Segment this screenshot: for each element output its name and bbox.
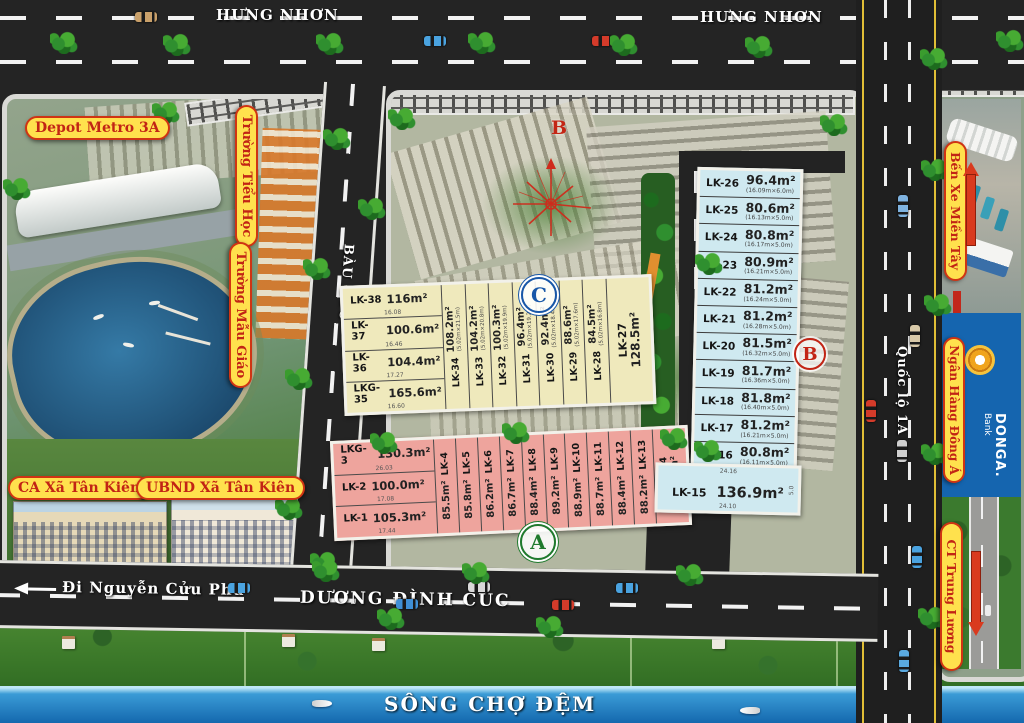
plot-area: 81.2m²	[743, 310, 793, 324]
plot-area: 80.8m²	[740, 446, 790, 460]
road-name-hung-nhon-left: HƯNG NHƠN	[216, 6, 339, 24]
plot-id: LK-20	[702, 340, 736, 353]
plot-lk27: LK-27 128.5m²	[606, 277, 654, 403]
plot-dims: (5.02m×17.6m)	[574, 302, 581, 346]
plot-area: 88.4m²	[616, 475, 628, 515]
car-icon	[898, 195, 908, 217]
car-icon	[899, 650, 909, 672]
plot-id: LK-17	[700, 422, 734, 435]
boat-icon	[312, 700, 332, 707]
plot-id: LK-12	[614, 441, 626, 471]
plot-id: LK-32	[497, 355, 509, 385]
label-ngan-hang-dong-a: Ngân Hàng Đông Á	[943, 337, 965, 483]
plot-id: LK-34	[450, 357, 462, 387]
plot-id: LK-37	[351, 320, 381, 343]
plot-row: LK-2380.9m²(16.21m×5.0m)	[698, 250, 799, 279]
label-ct-trung-luong: CT Trung Lương	[940, 522, 963, 671]
plot-id: LK-29	[568, 352, 580, 382]
plot-block-b: LK-2696.4m²(16.09m×6.0m)LK-2580.6m²(16.1…	[691, 167, 804, 473]
plot-id: LK-22	[703, 286, 737, 299]
plot-rows-pink: LKG-3130.3m²26.03LK-2100.0m²17.08LK-1105…	[333, 439, 437, 537]
bus-icon	[980, 196, 995, 220]
label-truong-tieu-hoc: Trường Tiểu Học	[235, 105, 258, 247]
plot-block-c: LK-38116m²16.08LK-37100.6m²16.46LK-36104…	[340, 274, 657, 416]
car-icon	[468, 582, 490, 592]
road-name-text: Quốc lộ 1A	[894, 346, 909, 435]
plot-id: LK-4	[439, 452, 451, 476]
car-icon	[866, 400, 876, 422]
plot-area: 100.0m²	[371, 477, 425, 493]
section-marker-b: B	[794, 338, 826, 370]
plot-id: LK-7	[505, 449, 517, 473]
plot-dims: (16.24m×5.0m)	[743, 297, 791, 304]
compass-north-letter: B	[551, 117, 567, 139]
plot-row: LK-1881.8m²(16.40m×5.0m)	[695, 386, 796, 415]
plot-id: LKG-35	[353, 382, 383, 405]
aerial-panel-left	[2, 94, 342, 582]
plot-area: 128.5m²	[628, 312, 643, 368]
plot-area: 89.2m²	[551, 475, 563, 515]
plot-row: LK-2100.0m²17.08	[334, 471, 435, 507]
plot-id: LK-18	[701, 395, 735, 408]
plot-row: LK-38116m²16.08	[343, 285, 442, 320]
plot-row: LK-1781.2m²(16.21m×5.0m)	[694, 414, 795, 443]
plot-row: LK-1981.7m²(16.36m×5.0m)	[695, 359, 796, 388]
plot-area: 104.4m²	[387, 353, 441, 369]
plot-dims: (16.13m×5.0m)	[745, 215, 793, 222]
road-name-hung-nhon-right: HƯNG NHƠN	[700, 8, 823, 26]
plot-id: LK-5	[461, 451, 473, 475]
car-icon	[616, 583, 638, 593]
donga-logo-icon	[965, 345, 995, 375]
plot-area: 85.8m²	[463, 479, 475, 519]
plot-id: LK-26	[706, 177, 740, 190]
house-icon	[62, 636, 75, 649]
label-text: Ngân Hàng Đông Á	[943, 337, 965, 483]
plot-row: LK-2480.8m²(16.17m×5.0m)	[699, 223, 800, 252]
road-edge-line	[934, 0, 936, 723]
car-icon	[396, 599, 418, 609]
plot-area: 86.7m²	[507, 477, 519, 517]
plot-id: LK-36	[352, 351, 382, 374]
plot-id: LK-15	[672, 485, 707, 499]
plot-row: LK-2696.4m²(16.09m×6.0m)	[700, 170, 801, 198]
plot-dim: 17.44	[378, 527, 395, 535]
plot-dim: 24.10	[719, 503, 736, 510]
plot-id: LK-23	[704, 259, 738, 272]
plot-area: 88.9m²	[573, 477, 585, 517]
label-text: Trường Mẫu Giáo	[229, 242, 252, 388]
house-icon	[372, 638, 385, 651]
label-text: Trường Tiểu Học	[235, 105, 258, 247]
plot-row: LK-36104.4m²17.27	[345, 348, 444, 383]
plot-dims: (5.02m×20.8m)	[480, 306, 487, 350]
plot-dims: (16.32m×5.0m)	[742, 351, 790, 358]
plot-row: LKG-35165.6m²16.60	[346, 379, 445, 413]
plot-area: 105.3m²	[373, 509, 427, 525]
plot-area: 88.7m²	[595, 476, 607, 516]
plot-row: LK-1105.3m²17.44	[336, 503, 437, 538]
compass-rose-icon	[507, 156, 595, 244]
donga-logo-text: DONGA. Bank	[982, 413, 1007, 478]
plot-id: LK-8	[527, 448, 539, 472]
plot-block-a: LKG-3130.3m²26.03LK-2100.0m²17.08LK-1105…	[330, 425, 692, 541]
plot-area: 165.6m²	[388, 384, 442, 400]
plot-dim: 24.16	[720, 468, 737, 475]
car-icon	[912, 546, 922, 568]
car-icon	[985, 605, 991, 616]
road-name-di-nguyen-cuu-phu: Đi Nguyễn Cửu Phú	[62, 578, 245, 599]
lane-dashes	[884, 0, 887, 723]
arrow-down-icon	[968, 552, 984, 636]
land-plot-map: DONGA. Bank HƯNG NHƠN HƯNG NHƠN BÀU GỐC	[0, 0, 1024, 723]
plot-id: LK-13	[636, 440, 648, 470]
plot-row: LK-2181.2m²(16.28m×5.0m)	[697, 305, 798, 334]
plot-area: 80.9m²	[744, 256, 794, 270]
plot-rows-yellow: LK-38116m²16.08LK-37100.6m²16.46LK-36104…	[343, 285, 446, 413]
plot-area: 80.6m²	[745, 201, 795, 215]
plot-dim: 17.27	[386, 371, 403, 379]
label-depot-metro: Depot Metro 3A	[25, 116, 170, 140]
plot-id: LK-10	[571, 443, 583, 473]
plot-dim: 16.46	[385, 340, 402, 348]
label-ca-xa-tan-kien: CA Xã Tân Kiên	[8, 476, 150, 500]
plot-id: LK-25	[705, 204, 739, 217]
plot-id: LK-38	[350, 294, 382, 306]
plot-id: LK-16	[700, 449, 734, 462]
label-text: CT Trung Lương	[940, 522, 963, 671]
plot-dim: 16.60	[388, 403, 405, 411]
plot-area: 85.5m²	[441, 480, 453, 520]
building-windows	[14, 522, 166, 566]
plot-id: LK-28	[592, 351, 604, 381]
house-icon	[282, 634, 295, 647]
plot-dims: (16.28m×5.0m)	[743, 324, 791, 331]
plot-id: LK-11	[593, 442, 605, 472]
car-icon	[592, 36, 614, 46]
plot-dims: (5.02m×18.4m)	[551, 303, 558, 347]
plot-row: LK-2081.5m²(16.32m×5.0m)	[696, 332, 797, 361]
plot-area: 81.5m²	[742, 337, 792, 351]
plot-id: LK-1	[343, 513, 368, 525]
plot-area: 88.2m²	[638, 474, 650, 514]
plot-id: LK-9	[549, 447, 561, 471]
plot-dims: (5.02m×19.9m)	[504, 305, 511, 349]
section-marker-c: C	[521, 277, 557, 313]
plot-strips-pink: 85.5m²LK-485.8m²LK-586.2m²LK-686.7m²LK-7…	[433, 430, 656, 534]
plot-id: LK-24	[705, 231, 739, 244]
plot-row: LK-37100.6m²16.46	[344, 316, 443, 351]
plot-dim: 17.08	[377, 496, 394, 504]
car-icon	[424, 36, 446, 46]
plot-area: 116m²	[386, 291, 428, 307]
plot-id: LK-6	[483, 450, 495, 474]
car-icon	[135, 12, 157, 22]
plot-id: LK-33	[474, 356, 486, 386]
plot-id: LK-31	[521, 353, 533, 383]
plot-id: LK-30	[544, 352, 556, 382]
plot-dim: 16.08	[384, 309, 401, 317]
car-icon	[910, 325, 920, 347]
plot-dims: (16.21m×5.0m)	[744, 269, 792, 276]
plot-area: 81.2m²	[744, 283, 794, 297]
plot-row: LK-2281.2m²(16.24m×5.0m)	[697, 278, 798, 307]
police-building	[13, 501, 167, 567]
plot-lk15: 24.16 LK-15 136.9m² 24.10 5.0	[654, 462, 801, 515]
road-name-quoc-lo-1a: Quốc lộ 1A	[894, 346, 909, 435]
plot-dims: (5.02m×21.5m)	[457, 307, 464, 351]
plot-area: 81.2m²	[740, 419, 790, 433]
railway-center-icon	[387, 93, 853, 113]
plot-area: 100.6m²	[386, 322, 440, 338]
plot-id: LKG-3	[340, 444, 373, 467]
boat-icon	[740, 707, 760, 714]
river-name: SÔNG CHỢ ĐỆM	[384, 692, 596, 716]
road-duong-dinh-cuc: Đi Nguyễn Cửu Phú DƯƠNG ĐÌNH CÚC	[0, 560, 878, 642]
plot-id: LK-21	[703, 313, 737, 326]
plot-area: 88.4m²	[529, 476, 541, 516]
donga-sub: Bank	[982, 413, 992, 478]
plot-area: 130.3m²	[377, 445, 431, 461]
plot-dim: 5.0	[789, 486, 796, 496]
plot-dims: (16.40m×5.0m)	[741, 405, 789, 412]
label-truong-mau-giao: Trường Mẫu Giáo	[229, 242, 252, 388]
plot-dims: (16.21m×5.0m)	[740, 432, 788, 439]
plot-area: 81.8m²	[741, 392, 791, 406]
section-marker-a: A	[520, 524, 556, 560]
plot-area: 96.4m²	[746, 174, 796, 188]
plot-id: LK-19	[702, 367, 736, 380]
label-ubnd-xa-tan-kien: UBND Xã Tân Kiên	[136, 476, 305, 500]
plot-dims: (5.02m×16.8m)	[598, 301, 605, 345]
plot-area: 136.9m²	[716, 485, 784, 503]
arrow-up-icon	[963, 162, 979, 246]
plot-row: LK-2580.6m²(16.13m×5.0m)	[699, 196, 800, 225]
plot-dim: 26.03	[375, 464, 392, 472]
plot-dims: (16.17m×5.0m)	[745, 242, 793, 249]
plot-dims: (16.09m×6.0m)	[746, 188, 794, 195]
plot-row: LKG-3130.3m²26.03	[333, 439, 434, 475]
car-icon	[228, 583, 250, 593]
plot-area: 81.7m²	[742, 365, 792, 379]
bus-icon	[994, 208, 1009, 232]
plot-area: 80.8m²	[745, 229, 795, 243]
car-icon	[552, 600, 574, 610]
donga-wordmark: DONGA.	[992, 413, 1007, 478]
plot-dims: (16.36m×5.0m)	[742, 378, 790, 385]
plot-area: 86.2m²	[485, 478, 497, 518]
car-icon	[897, 440, 907, 462]
plot-id: LK-2	[342, 481, 367, 493]
